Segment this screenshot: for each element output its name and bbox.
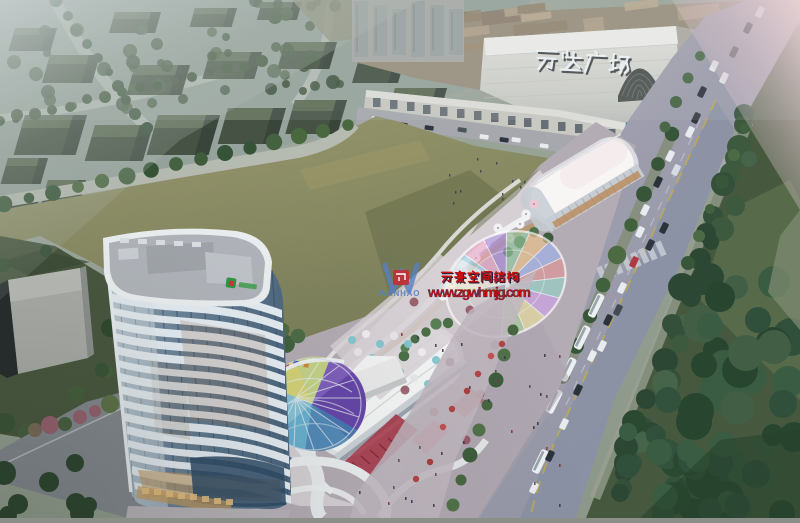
svg-text:www.zgwhmjg.com: www.zgwhmjg.com [427,284,531,300]
svg-text:WANHAO: WANHAO [379,289,420,298]
